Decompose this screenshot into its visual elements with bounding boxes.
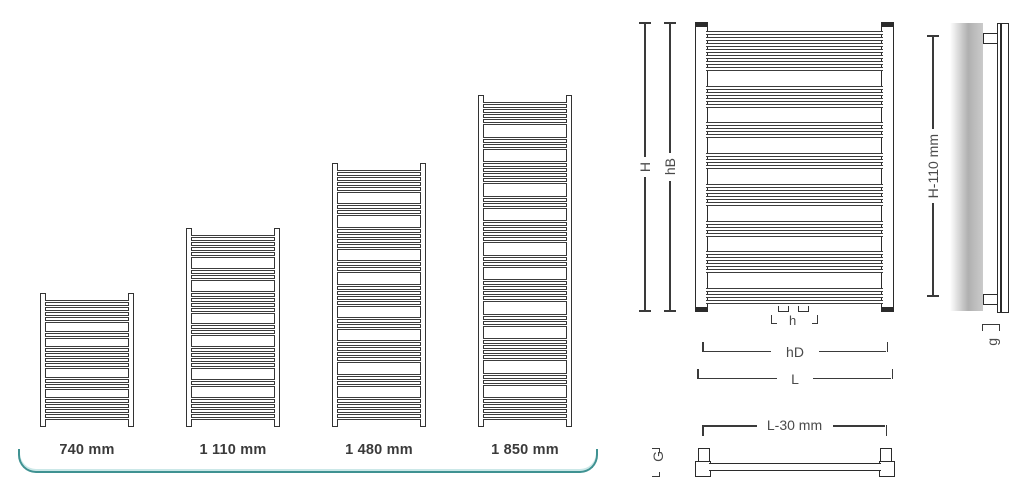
tube [45, 336, 129, 339]
dim-tick [887, 342, 889, 352]
tube [337, 402, 421, 405]
tube [337, 237, 421, 240]
tube-group [191, 268, 275, 281]
tube [191, 278, 275, 281]
tube-group [337, 317, 421, 330]
tube [483, 220, 567, 223]
tube [483, 412, 567, 415]
tube [191, 384, 275, 387]
wall-mount-bracket [983, 294, 997, 305]
tube [337, 227, 421, 230]
radiator-dimension-diagram: 740 mm1 110 mm1 480 mm1 850 mm H hB h hD [0, 0, 1025, 482]
tube [706, 67, 883, 71]
tube [191, 333, 275, 336]
tube [706, 134, 883, 138]
tube-group [45, 346, 129, 369]
tube [191, 346, 275, 349]
tube-group [337, 284, 421, 307]
tube-group [483, 314, 567, 327]
wall-mount-bracket [983, 33, 997, 44]
size-variant-figure: 1 850 mm [478, 95, 572, 458]
tube [483, 181, 567, 184]
tube [45, 320, 129, 323]
tube [483, 107, 567, 110]
tube-group [706, 122, 883, 138]
tube [706, 122, 883, 126]
tube-group [483, 137, 567, 150]
tube [483, 260, 567, 263]
tube [337, 345, 421, 348]
dim-tick [639, 310, 651, 312]
tube [706, 196, 883, 200]
tube [337, 412, 421, 415]
tube [483, 201, 567, 204]
tube [337, 407, 421, 410]
tube [483, 112, 567, 115]
tube [45, 412, 129, 415]
dim-label-g: g [984, 333, 1000, 351]
radiator-drawing [478, 95, 572, 427]
tube [483, 230, 567, 233]
tube [483, 225, 567, 228]
tube-group [337, 374, 421, 387]
dim-corner [652, 472, 660, 477]
tube [337, 203, 421, 206]
dim-bracket-hD: hD [702, 342, 888, 352]
tube [483, 142, 567, 145]
tube [337, 284, 421, 287]
tube-group [337, 260, 421, 273]
tube [483, 166, 567, 169]
tube-group [337, 170, 421, 193]
tube-group [483, 373, 567, 386]
tube-group [706, 221, 883, 237]
tube [191, 397, 275, 400]
tube-group [191, 291, 275, 314]
tube [337, 208, 421, 211]
tube [706, 227, 883, 231]
tube [337, 265, 421, 268]
tube [191, 402, 275, 405]
tube [706, 49, 883, 53]
tube [45, 346, 129, 349]
tube [706, 92, 883, 96]
tube-group [191, 346, 275, 369]
size-variant-figure: 1 110 mm [186, 228, 280, 458]
tube-group [706, 31, 883, 71]
dim-label-L: L [791, 371, 799, 387]
dim-label-L-30: L-30 mm [767, 417, 822, 433]
tube [191, 296, 275, 299]
tube [706, 184, 883, 188]
tube [191, 351, 275, 354]
tube [483, 265, 567, 268]
tube [337, 417, 421, 420]
tube-array [45, 300, 129, 420]
tube [706, 257, 883, 261]
tube [45, 387, 129, 390]
tube [483, 161, 567, 164]
tube [191, 301, 275, 304]
tube-group [483, 255, 567, 268]
tube [483, 353, 567, 356]
tube-group [45, 397, 129, 420]
tube [706, 165, 883, 169]
tube [706, 128, 883, 132]
tube [337, 350, 421, 353]
tube [706, 61, 883, 65]
tube [483, 407, 567, 410]
tube [337, 360, 421, 363]
tube-group [483, 220, 567, 243]
tube [337, 340, 421, 343]
tube [483, 343, 567, 346]
tube [706, 31, 883, 35]
dim-bracket-H-110: H-110 mm [926, 35, 940, 297]
tube [706, 159, 883, 163]
tube-group [483, 102, 567, 125]
tube [191, 407, 275, 410]
dim-label-H: H [637, 157, 653, 177]
dim-line [704, 351, 771, 353]
dim-label-G: G [650, 451, 666, 462]
tube [45, 377, 129, 380]
tube-group [706, 184, 883, 206]
tube [483, 284, 567, 287]
dim-line [644, 177, 646, 310]
tube-group [191, 379, 275, 387]
tube-group [483, 161, 567, 184]
tube [337, 270, 421, 273]
tube-group [45, 377, 129, 390]
tube [706, 288, 883, 292]
size-variant-figure: 1 480 mm [332, 163, 426, 458]
tube [483, 235, 567, 238]
tube [337, 304, 421, 307]
tube [706, 98, 883, 102]
tube [706, 233, 883, 237]
dim-bracket-g [982, 324, 1000, 331]
tube [191, 245, 275, 248]
size-variant-figure: 740 mm [40, 293, 134, 458]
tube [706, 190, 883, 194]
tube [706, 37, 883, 41]
tube [45, 300, 129, 303]
dim-line [704, 425, 757, 427]
tube-array [337, 170, 421, 420]
tube [337, 384, 421, 387]
tube [337, 379, 421, 382]
tube [337, 355, 421, 358]
tube [45, 407, 129, 410]
tube-group [337, 397, 421, 420]
tube [483, 206, 567, 209]
tube [706, 300, 883, 304]
tube [337, 327, 421, 330]
tube [483, 397, 567, 400]
tube [191, 268, 275, 271]
dim-line [932, 37, 934, 129]
tube [706, 251, 883, 255]
dim-tick [892, 369, 894, 379]
tube-group [191, 235, 275, 258]
tube-group [706, 86, 883, 108]
tube [337, 213, 421, 216]
tube [191, 356, 275, 359]
dim-bracket-L-30: L-30 mm [702, 425, 887, 436]
tube [337, 247, 421, 250]
tube-group [706, 251, 883, 273]
tube [706, 43, 883, 47]
tube [483, 373, 567, 376]
tube-array [706, 31, 883, 304]
tube [45, 305, 129, 308]
tube [483, 102, 567, 105]
tube [191, 311, 275, 314]
bar-end-block [698, 448, 710, 462]
tube [483, 358, 567, 361]
tube [483, 171, 567, 174]
tube [483, 348, 567, 351]
tube [45, 366, 129, 369]
tube-array [191, 235, 275, 420]
tube [337, 322, 421, 325]
tube [483, 314, 567, 317]
dim-tick [702, 425, 704, 436]
tube [45, 382, 129, 385]
tube [45, 397, 129, 400]
bar-tube [709, 463, 881, 471]
size-variant-row: 740 mm1 110 mm1 480 mm1 850 mm [40, 95, 572, 458]
tube [191, 291, 275, 294]
tube [706, 269, 883, 273]
radiator-drawing [186, 228, 280, 427]
dim-label-hD: hD [786, 344, 804, 360]
tube [706, 263, 883, 267]
tube [483, 338, 567, 341]
tube [191, 328, 275, 331]
tube [337, 260, 421, 263]
tube-group [45, 300, 129, 323]
tube-group [45, 331, 129, 339]
tube [483, 137, 567, 140]
tube [337, 185, 421, 188]
radiator-drawing [40, 293, 134, 427]
tube [706, 202, 883, 206]
tube [191, 235, 275, 238]
tube [483, 255, 567, 258]
tube [337, 289, 421, 292]
tube [483, 324, 567, 327]
dim-label-hB: hB [662, 153, 678, 180]
tube [337, 317, 421, 320]
tube-group [483, 279, 567, 302]
dim-tick [664, 310, 676, 312]
tube-group [483, 397, 567, 420]
tube-group [483, 196, 567, 209]
tube [706, 294, 883, 298]
tube-group [337, 203, 421, 216]
tube [483, 147, 567, 150]
tube [706, 221, 883, 225]
tube [483, 240, 567, 243]
dim-corner [771, 315, 777, 324]
tube [337, 170, 421, 173]
side-view-radiator [997, 23, 1009, 313]
tube [483, 289, 567, 292]
bar-end-block [879, 461, 895, 477]
connection-stub [778, 306, 789, 312]
dim-line [669, 24, 671, 153]
tube [483, 417, 567, 420]
tube [191, 273, 275, 276]
tube [191, 255, 275, 258]
tube [45, 417, 129, 420]
tube [337, 180, 421, 183]
dim-line [644, 24, 646, 157]
dim-tick [927, 295, 939, 297]
tube [45, 356, 129, 359]
tube [191, 250, 275, 253]
tube [191, 361, 275, 364]
connection-stub [798, 306, 809, 312]
tube [483, 196, 567, 199]
tube [337, 232, 421, 235]
tube [483, 378, 567, 381]
tube [483, 402, 567, 405]
tube [337, 299, 421, 302]
tube [483, 299, 567, 302]
dim-tick [886, 425, 888, 436]
tube [337, 175, 421, 178]
wall-shading [950, 23, 983, 311]
tube [191, 306, 275, 309]
radiator-drawing [332, 163, 426, 427]
tube [706, 153, 883, 157]
tube [483, 279, 567, 282]
tube [191, 412, 275, 415]
dim-line [699, 378, 777, 380]
tube [191, 323, 275, 326]
tube [191, 240, 275, 243]
dim-line [932, 203, 934, 295]
tube-group [706, 153, 883, 169]
tube [337, 374, 421, 377]
dim-line [819, 351, 886, 353]
dim-label-H-110: H-110 mm [925, 129, 941, 203]
dim-bracket-L: L [697, 369, 893, 379]
tube [45, 310, 129, 313]
dim-corner [812, 315, 818, 324]
dim-bracket-hB: hB [663, 22, 677, 312]
tube-group [483, 338, 567, 361]
tube [45, 315, 129, 318]
tube [191, 366, 275, 369]
dim-bracket-H: H [638, 22, 652, 312]
size-range-bracket-line [18, 449, 598, 473]
bar-end-block [880, 448, 892, 462]
tube [337, 190, 421, 193]
tube [706, 86, 883, 90]
tube-group [191, 323, 275, 336]
tube [45, 402, 129, 405]
tube [483, 117, 567, 120]
tube [706, 104, 883, 108]
tube [483, 319, 567, 322]
tube [483, 383, 567, 386]
tube-group [337, 340, 421, 363]
tube-group [337, 227, 421, 250]
tube [191, 379, 275, 382]
tube-array [483, 102, 567, 420]
tube [706, 55, 883, 59]
tube [337, 294, 421, 297]
dim-label-h: h [789, 313, 796, 328]
tube [337, 397, 421, 400]
tube-group [706, 288, 883, 304]
tube [483, 294, 567, 297]
tube [191, 417, 275, 420]
tube [45, 351, 129, 354]
tube-group [191, 397, 275, 420]
dim-line [833, 425, 886, 427]
dim-line [669, 181, 671, 310]
tube [45, 331, 129, 334]
dim-line [813, 378, 891, 380]
front-view-radiator [695, 22, 894, 312]
tube [483, 122, 567, 125]
tube [483, 176, 567, 179]
tube [337, 242, 421, 245]
tube [45, 361, 129, 364]
